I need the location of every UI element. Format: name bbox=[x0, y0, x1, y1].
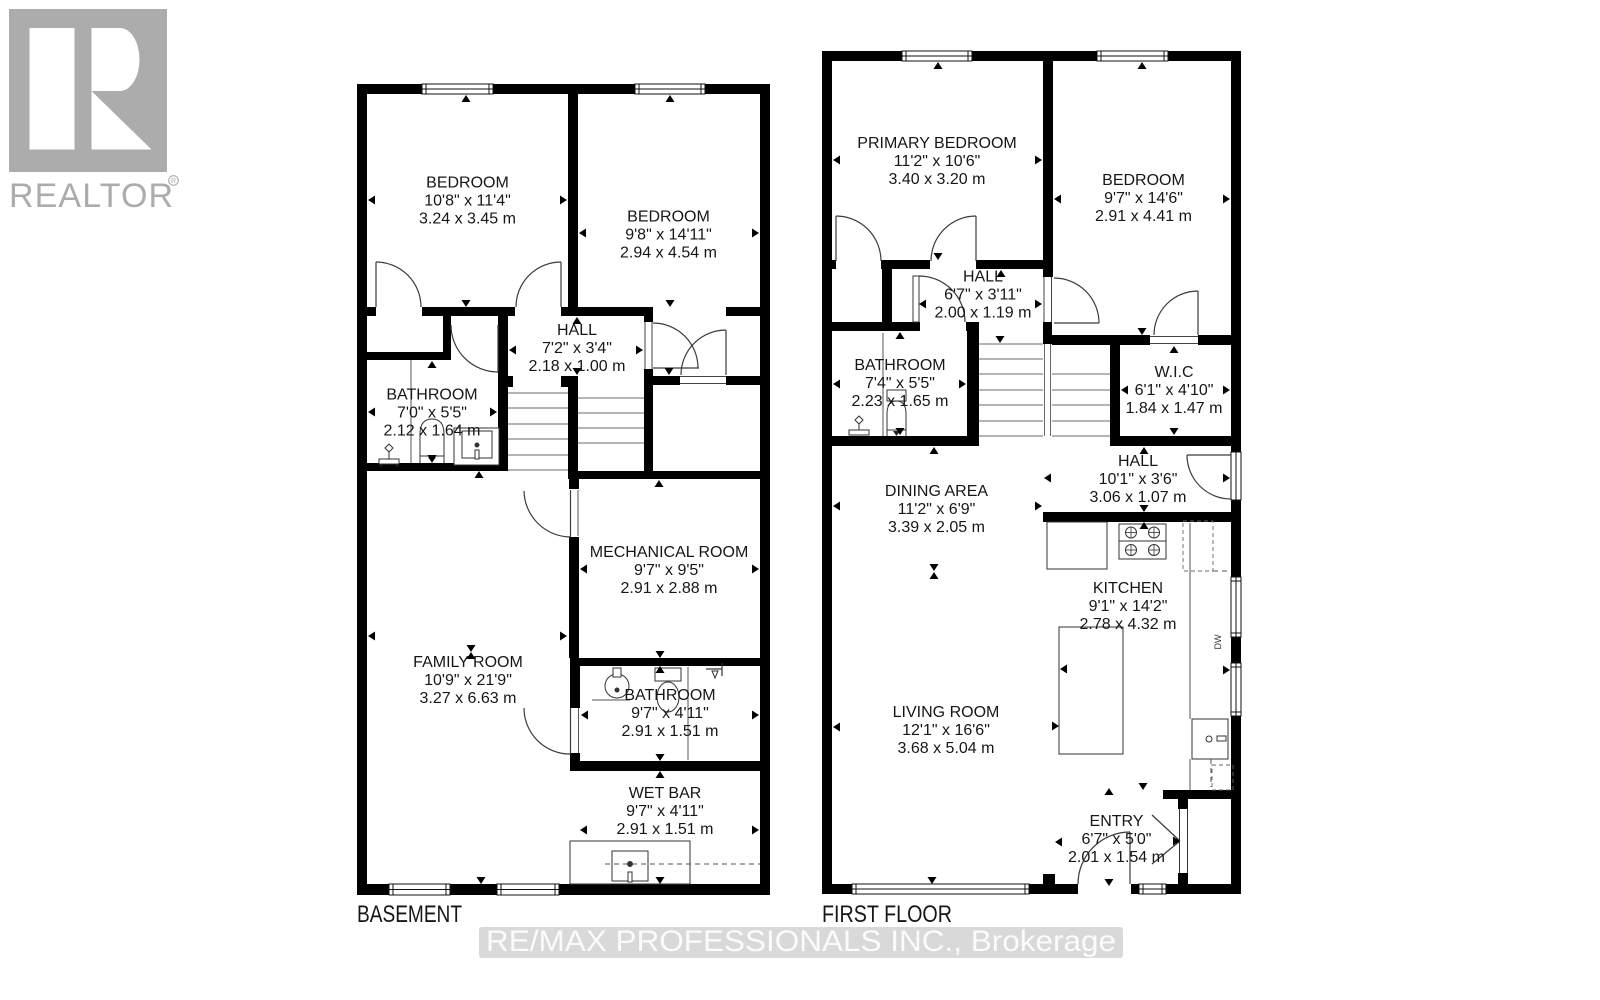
svg-text:6'7" x 5'0": 6'7" x 5'0" bbox=[1082, 831, 1152, 848]
svg-text:9'8" x 14'11": 9'8" x 14'11" bbox=[625, 227, 712, 244]
svg-text:3.40 x 3.20 m: 3.40 x 3.20 m bbox=[889, 171, 986, 188]
svg-text:9'7" x 4'11": 9'7" x 4'11" bbox=[626, 803, 704, 820]
svg-text:BATHROOM: BATHROOM bbox=[854, 357, 945, 374]
svg-text:2.91 x 2.88 m: 2.91 x 2.88 m bbox=[621, 580, 718, 597]
svg-text:DINING AREA: DINING AREA bbox=[885, 483, 988, 500]
svg-text:W.I.C: W.I.C bbox=[1154, 364, 1193, 381]
svg-text:BATHROOM: BATHROOM bbox=[386, 387, 477, 404]
svg-text:12'1" x 16'6": 12'1" x 16'6" bbox=[902, 722, 990, 739]
svg-text:HALL: HALL bbox=[557, 322, 597, 339]
svg-text:WET BAR: WET BAR bbox=[629, 785, 702, 802]
svg-text:7'2" x 3'4": 7'2" x 3'4" bbox=[542, 340, 612, 357]
svg-text:11'2" x 6'9": 11'2" x 6'9" bbox=[898, 501, 976, 518]
svg-text:10'9" x 21'9": 10'9" x 21'9" bbox=[424, 672, 512, 689]
svg-text:FAMILY ROOM: FAMILY ROOM bbox=[413, 654, 523, 671]
svg-text:ENTRY: ENTRY bbox=[1090, 813, 1144, 830]
svg-text:HALL: HALL bbox=[963, 269, 1003, 286]
svg-text:2.91 x 1.51 m: 2.91 x 1.51 m bbox=[622, 723, 719, 740]
svg-text:DW: DW bbox=[1213, 634, 1223, 649]
svg-text:PRIMARY BEDROOM: PRIMARY BEDROOM bbox=[857, 135, 1016, 152]
svg-text:KITCHEN: KITCHEN bbox=[1093, 580, 1163, 597]
svg-text:9'1" x 14'2": 9'1" x 14'2" bbox=[1089, 598, 1168, 615]
svg-text:7'0" x 5'5": 7'0" x 5'5" bbox=[397, 405, 467, 422]
svg-text:1.84 x 1.47 m: 1.84 x 1.47 m bbox=[1126, 400, 1223, 417]
svg-text:REALTOR: REALTOR bbox=[9, 177, 174, 215]
svg-text:10'8" x 11'4": 10'8" x 11'4" bbox=[424, 193, 511, 210]
svg-text:2.01 x 1.54 m: 2.01 x 1.54 m bbox=[1068, 849, 1165, 866]
svg-text:3.24 x 3.45 m: 3.24 x 3.45 m bbox=[419, 211, 516, 228]
svg-text:2.91 x 1.51 m: 2.91 x 1.51 m bbox=[617, 821, 714, 838]
svg-text:9'7" x 4'11": 9'7" x 4'11" bbox=[631, 705, 709, 722]
svg-text:3.27 x 6.63 m: 3.27 x 6.63 m bbox=[420, 690, 517, 707]
svg-text:LIVING ROOM: LIVING ROOM bbox=[893, 704, 1000, 721]
svg-text:BASEMENT: BASEMENT bbox=[357, 901, 462, 928]
svg-text:6'1" x 4'10": 6'1" x 4'10" bbox=[1135, 382, 1214, 399]
svg-text:R: R bbox=[171, 178, 176, 185]
svg-text:3.39 x 2.05 m: 3.39 x 2.05 m bbox=[888, 519, 985, 536]
svg-text:BEDROOM: BEDROOM bbox=[426, 175, 509, 192]
svg-text:6'7" x 3'11": 6'7" x 3'11" bbox=[944, 287, 1022, 304]
svg-text:MECHANICAL ROOM: MECHANICAL ROOM bbox=[590, 544, 749, 561]
svg-text:9'7" x 14'6": 9'7" x 14'6" bbox=[1104, 190, 1183, 207]
svg-text:9'7" x 9'5": 9'7" x 9'5" bbox=[634, 562, 704, 579]
svg-text:BATHROOM: BATHROOM bbox=[624, 687, 715, 704]
svg-text:HALL: HALL bbox=[1118, 453, 1158, 470]
svg-text:2.12 x 1.64 m: 2.12 x 1.64 m bbox=[384, 423, 481, 440]
svg-text:3.68 x 5.04 m: 3.68 x 5.04 m bbox=[898, 740, 995, 757]
svg-text:7'4" x 5'5": 7'4" x 5'5" bbox=[865, 375, 935, 392]
svg-text:11'2" x 10'6": 11'2" x 10'6" bbox=[894, 153, 981, 170]
svg-text:3.06 x 1.07 m: 3.06 x 1.07 m bbox=[1090, 489, 1187, 506]
svg-text:2.91 x 4.41 m: 2.91 x 4.41 m bbox=[1095, 208, 1192, 225]
svg-text:10'1" x 3'6": 10'1" x 3'6" bbox=[1099, 471, 1178, 488]
svg-text:FIRST FLOOR: FIRST FLOOR bbox=[822, 901, 952, 928]
svg-text:2.94 x 4.54 m: 2.94 x 4.54 m bbox=[620, 245, 717, 262]
svg-text:2.23 x 1.65 m: 2.23 x 1.65 m bbox=[852, 393, 949, 410]
svg-text:2.78 x 4.32 m: 2.78 x 4.32 m bbox=[1080, 616, 1177, 633]
svg-text:BEDROOM: BEDROOM bbox=[1102, 172, 1185, 189]
svg-text:BEDROOM: BEDROOM bbox=[627, 209, 710, 226]
svg-text:2.18 x 1.00 m: 2.18 x 1.00 m bbox=[529, 358, 626, 375]
svg-text:2.00 x 1.19 m: 2.00 x 1.19 m bbox=[935, 305, 1032, 322]
svg-text:RE/MAX PROFESSIONALS INC., Br: RE/MAX PROFESSIONALS INC., Brokerage bbox=[486, 925, 1116, 958]
